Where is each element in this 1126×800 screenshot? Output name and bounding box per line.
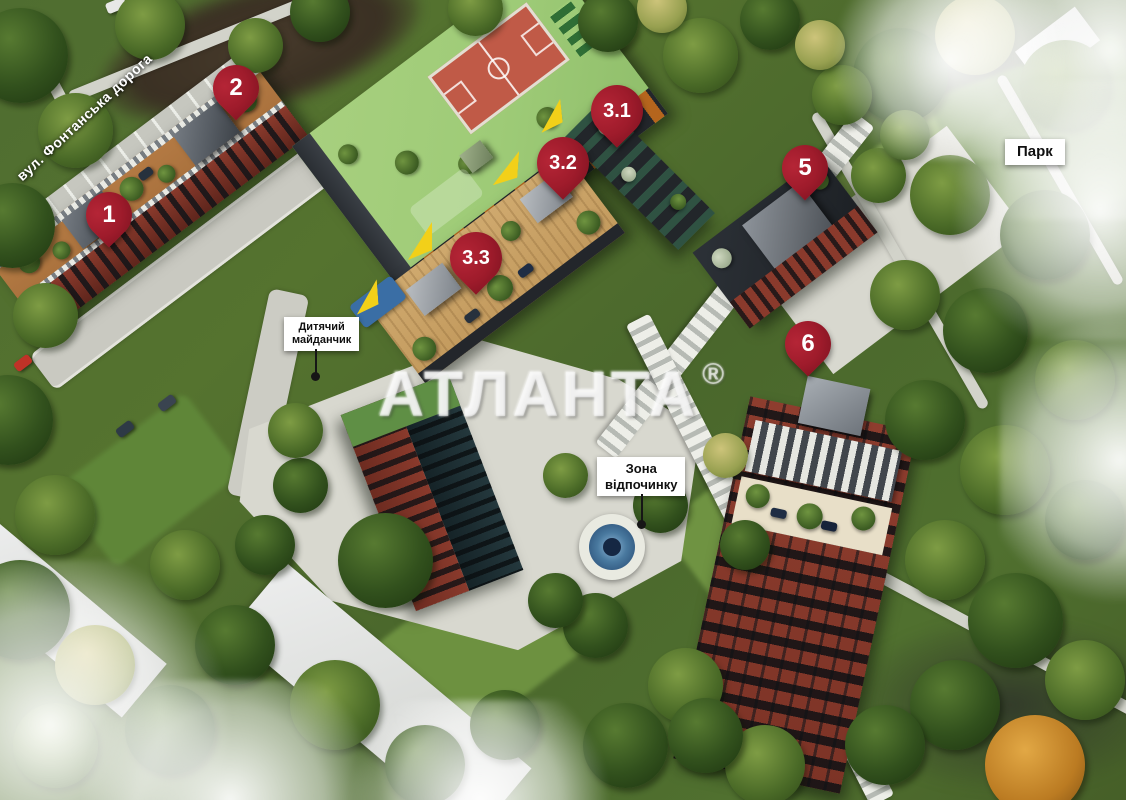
tree (943, 288, 1028, 373)
tree (1045, 640, 1125, 720)
tree (703, 433, 748, 478)
tree (0, 375, 53, 465)
tree (985, 715, 1085, 800)
tree (385, 725, 465, 800)
marker-building-5[interactable]: 5 (772, 135, 837, 200)
tree (960, 425, 1050, 515)
tree (273, 458, 328, 513)
playground-label-line1: Дитячий (292, 321, 351, 334)
tree (795, 20, 845, 70)
marker-building-1[interactable]: 1 (76, 182, 141, 247)
tree (812, 65, 872, 125)
park-label: Парк (1005, 139, 1065, 165)
aerial-site-plan: вул. Фонтанська дорога АТЛАНТА ® Дитячий… (0, 0, 1126, 800)
tree (668, 698, 743, 773)
tree (910, 155, 990, 235)
tree (338, 513, 433, 608)
tree (0, 183, 55, 268)
tree (15, 475, 95, 555)
rest-zone-label-line1: Зона (605, 461, 677, 477)
tree (470, 690, 540, 760)
tree (1035, 340, 1115, 420)
tree (1020, 40, 1110, 130)
tree (290, 0, 350, 42)
tree (885, 380, 965, 460)
tree (195, 605, 275, 685)
tree (845, 705, 925, 785)
rest-zone-leader-line (641, 494, 643, 522)
tree (870, 260, 940, 330)
tree (968, 573, 1063, 668)
tree (290, 660, 380, 750)
marker-building-3-2[interactable]: 3.2 (526, 126, 600, 200)
tree (448, 0, 503, 36)
tree (13, 703, 98, 788)
tree (880, 110, 930, 160)
tree (13, 283, 78, 348)
marker-building-2[interactable]: 2 (203, 55, 268, 120)
tree (720, 520, 770, 570)
marker-building-3-3[interactable]: 3.3 (439, 221, 513, 295)
tree (235, 515, 295, 575)
tree (1000, 190, 1090, 280)
rest-zone-leader-dot (637, 520, 646, 529)
marker-building-3-1[interactable]: 3.1 (580, 74, 654, 148)
tree (740, 0, 800, 50)
tree (0, 8, 68, 103)
tree (55, 625, 135, 705)
tree (125, 685, 215, 775)
tree (578, 0, 638, 52)
tree (528, 573, 583, 628)
marker-building-6[interactable]: 6 (775, 311, 840, 376)
tree (268, 403, 323, 458)
tree (583, 703, 668, 788)
playground-leader-dot (311, 372, 320, 381)
playground-leader-line (315, 349, 317, 373)
park-label-text: Парк (1017, 143, 1053, 160)
playground-label: Дитячий майданчик (284, 317, 359, 351)
park-trees (0, 0, 1126, 800)
tree (115, 0, 185, 60)
playground-label-line2: майданчик (292, 334, 351, 347)
tree (935, 0, 1015, 75)
tree (543, 453, 588, 498)
rest-zone-label: Зона відпочинку (597, 457, 685, 496)
tree (1045, 480, 1125, 560)
tree (150, 530, 220, 600)
rest-zone-label-line2: відпочинку (605, 477, 677, 493)
tree (905, 520, 985, 600)
